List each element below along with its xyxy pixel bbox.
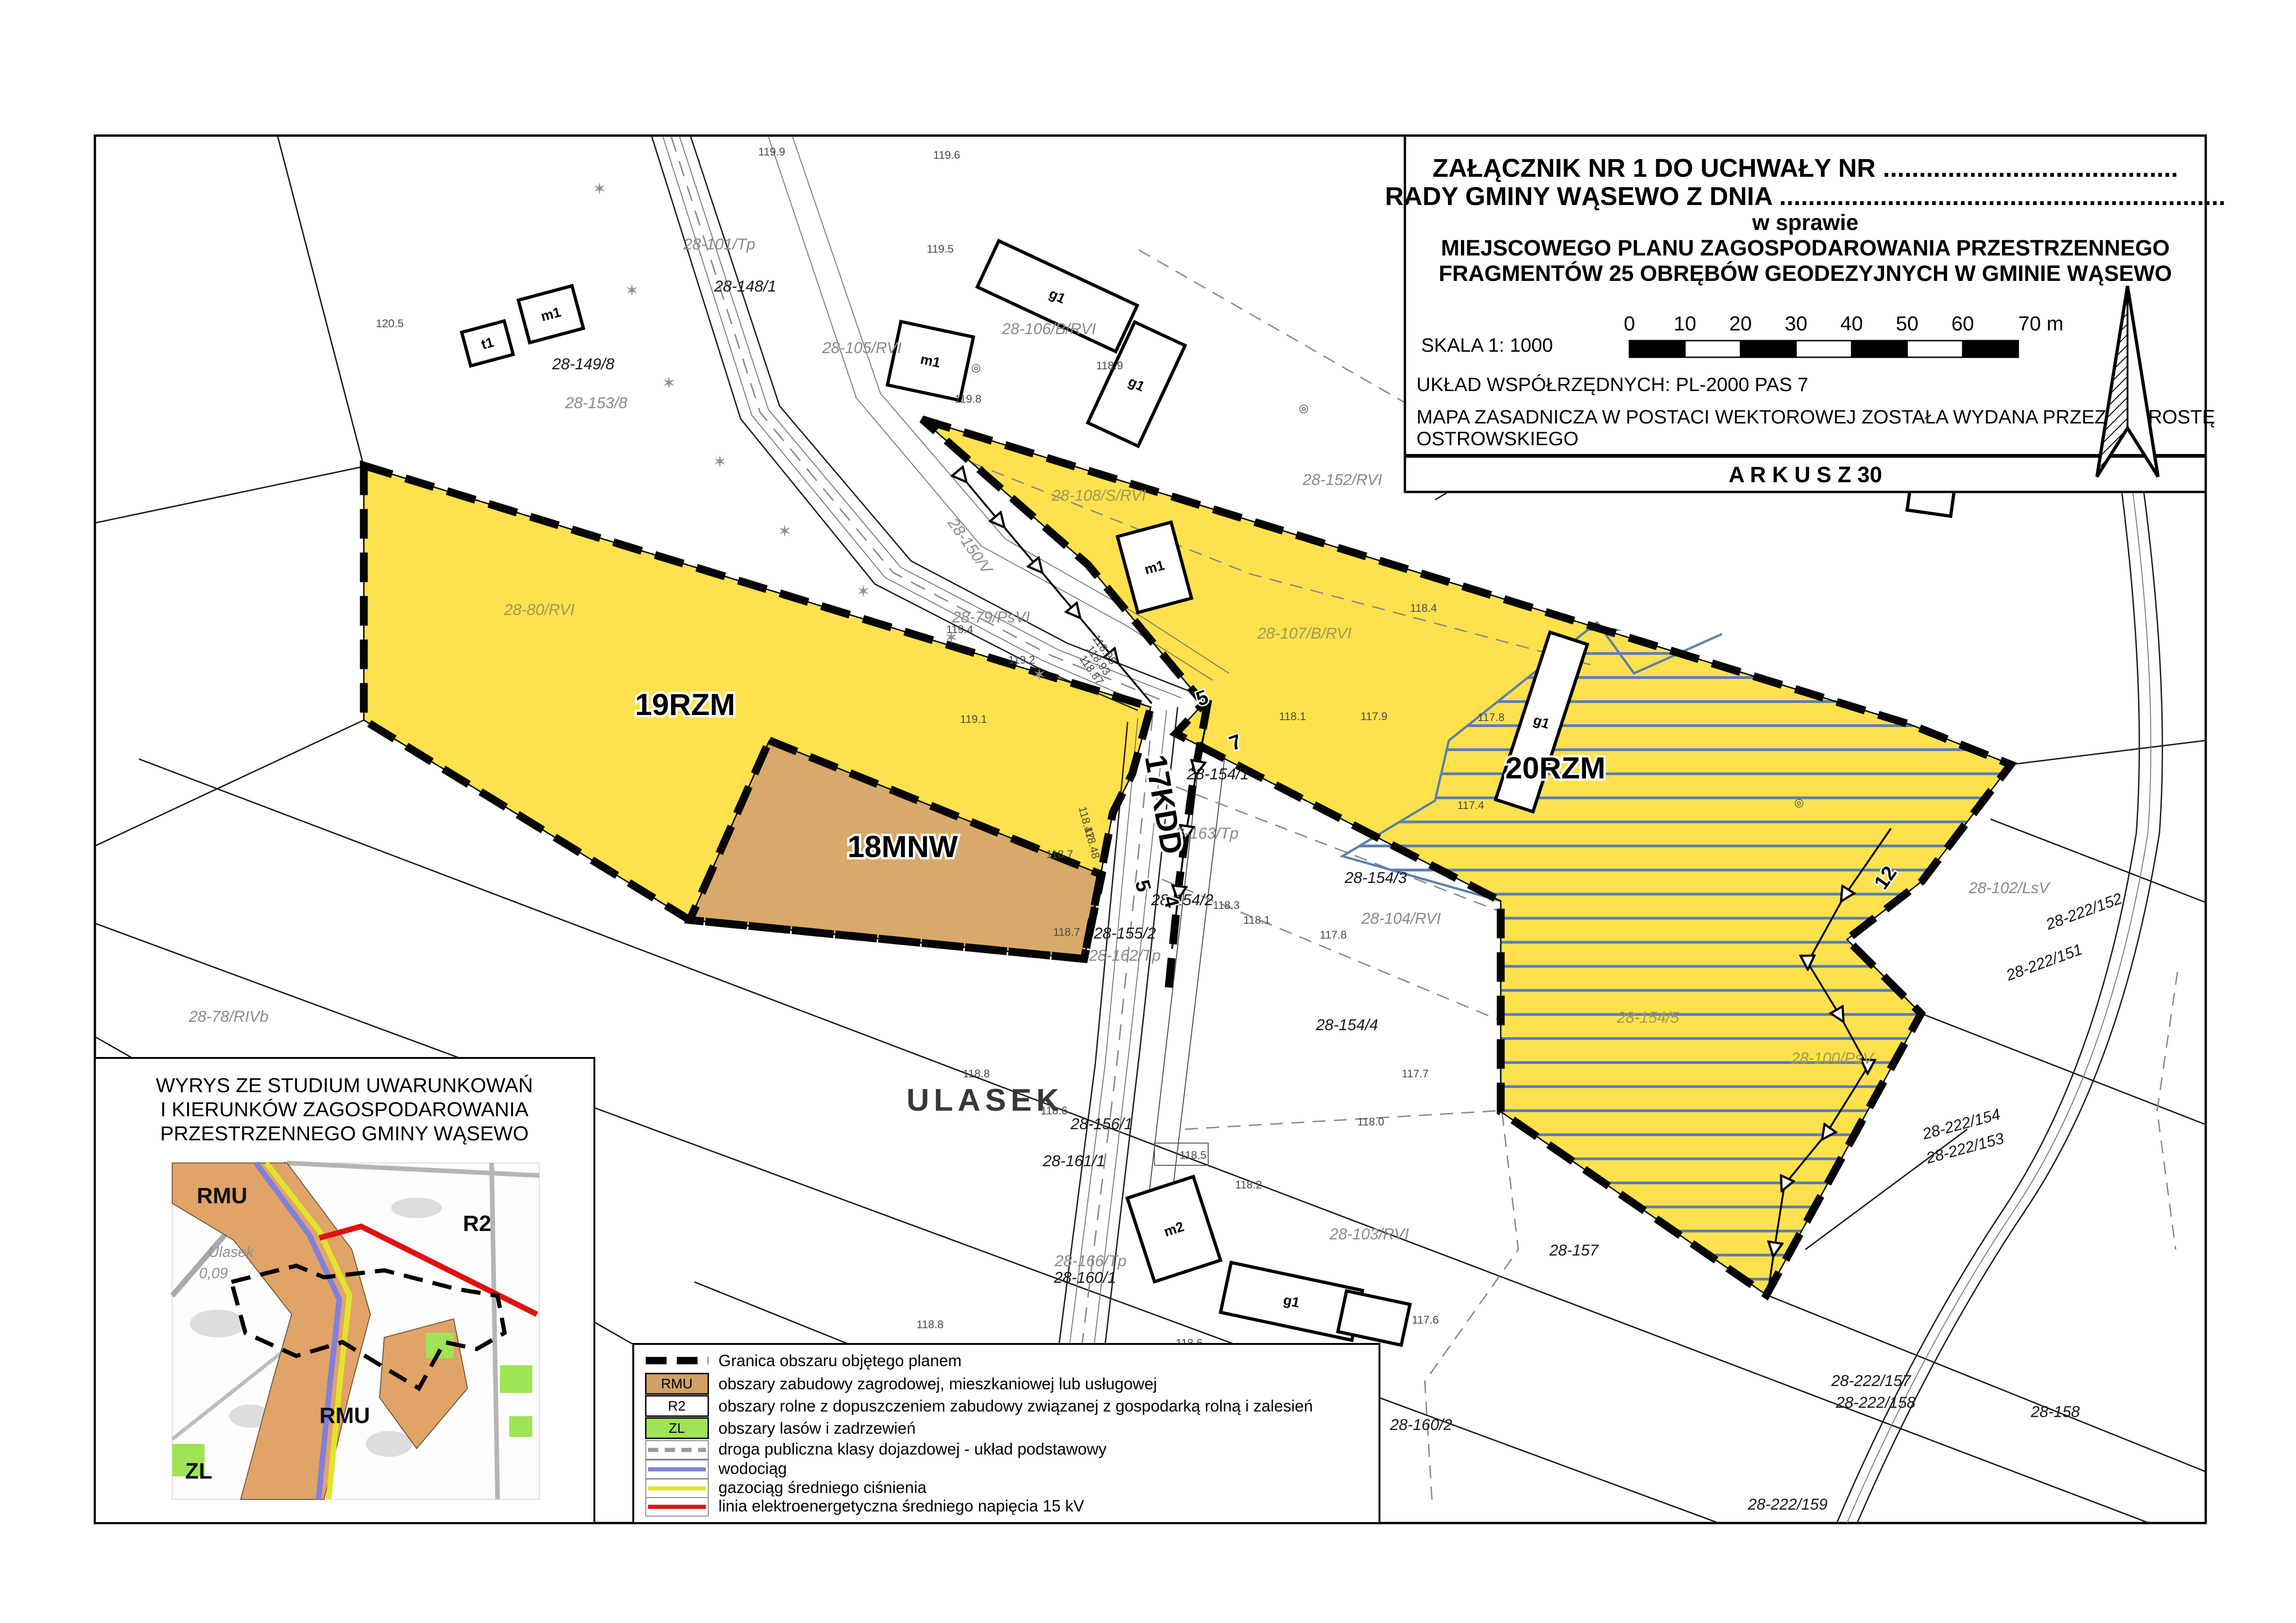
- source-line2: OSTROWSKIEGO: [1416, 428, 1578, 449]
- inset-label: ZL: [185, 1459, 212, 1484]
- legend-label: linia elektroenergetyczna średniego napi…: [718, 1497, 1085, 1515]
- scale-bar-segment: [1852, 341, 1907, 357]
- spot-height: 117.4: [1457, 799, 1484, 812]
- parcel-label: 28-160/2: [1390, 1416, 1452, 1434]
- inset-study-map: WYRYS ZE STUDIUM UWARUNKOWAŃ I KIERUNKÓW…: [95, 1058, 594, 1523]
- parcel-label: 28-107/B/RVI: [1257, 625, 1352, 642]
- parcel-label: 28-154/5: [1616, 1009, 1679, 1026]
- parcel-label: 28-106/B/RVI: [1001, 320, 1096, 338]
- scale-bar-segment: [1907, 341, 1963, 357]
- parcel-label: 28-162/Tp: [1089, 947, 1161, 964]
- title-line2: RADY GMINY WĄSEWO Z DNIA ...............…: [1385, 181, 2226, 211]
- spot-height: 118.5: [1179, 1149, 1206, 1162]
- inset-title-line3: PRZESTRZENNEGO GMINY WĄSEWO: [160, 1122, 529, 1145]
- spot-height: 118.8: [963, 1068, 990, 1080]
- svg-text:✶: ✶: [713, 452, 727, 471]
- scale-bar-segment: [1741, 341, 1796, 357]
- place-label-ulasek: ULASEK: [906, 1082, 1064, 1118]
- spot-height: 118.1: [1243, 914, 1270, 927]
- scale-bar-tick: 20: [1729, 312, 1752, 335]
- inset-label: 0,09: [199, 1265, 228, 1281]
- parcel-label: 28-222/159: [1747, 1496, 1828, 1513]
- spot-height: 119.4: [946, 623, 973, 636]
- legend-key: ZL: [668, 1421, 685, 1436]
- survey-point-icon: ◎: [1794, 796, 1804, 809]
- inset-label: RMU: [197, 1184, 247, 1208]
- parcel-label: 28-148/1: [714, 278, 776, 295]
- parcel-label: 28-78/RIVb: [188, 1008, 268, 1026]
- survey-point-icon: ◎: [971, 361, 981, 374]
- spot-height: 117.9: [1360, 710, 1387, 723]
- title-block: ZAŁĄCZNIK NR 1 DO UCHWAŁY NR ...........…: [1385, 136, 2226, 492]
- title-line3: w sprawie: [1752, 211, 1858, 235]
- legend-label: droga publiczna klasy dojazdowej - układ…: [718, 1440, 1107, 1458]
- parcel-label: 28-222/157: [1831, 1372, 1911, 1390]
- legend-label: Granica obszaru objętego planem: [718, 1352, 961, 1370]
- inset-map-graphic: RMUR2RMUZLUlasek0,09: [172, 1163, 539, 1499]
- legend-label: obszary lasów i zadrzewień: [718, 1419, 916, 1437]
- coord-system: UKŁAD WSPÓŁRZĘDNYCH: PL-2000 PAS 7: [1416, 373, 1809, 395]
- spot-height: 118.7: [1046, 848, 1073, 861]
- title-line1: ZAŁĄCZNIK NR 1 DO UCHWAŁY NR ...........…: [1433, 153, 2178, 182]
- scale-bar-tick: 10: [1674, 312, 1697, 335]
- scale-bar-tick: 30: [1785, 312, 1808, 335]
- parcel-label: 28-158: [2030, 1403, 2080, 1421]
- building: m1: [887, 322, 973, 400]
- scale-bar-segment: [1796, 341, 1852, 357]
- legend-label: obszary rolne z dopuszczeniem zabudowy z…: [718, 1397, 1313, 1415]
- spot-height: 118.1: [1279, 710, 1306, 723]
- legend-row: R2obszary rolne z dopuszczeniem zabudowy…: [646, 1396, 1313, 1416]
- scale-bar-segment: [1963, 341, 2018, 357]
- inset-label: R2: [463, 1212, 491, 1236]
- parcel-label: 28-153/8: [565, 394, 627, 412]
- legend-row: RMUobszary zabudowy zagrodowej, mieszkan…: [646, 1374, 1157, 1394]
- parcel-label: 28-222/158: [1835, 1394, 1915, 1412]
- spot-height: 119.6: [933, 149, 960, 162]
- parcel-label: 28-152/RVI: [1302, 471, 1382, 489]
- title-line4: MIEJSCOWEGO PLANU ZAGOSPODAROWANIA PRZES…: [1441, 236, 2170, 261]
- parcel-label: 28-154/3: [1344, 869, 1407, 887]
- parcel-label: 28-166/Tp: [1054, 1252, 1127, 1270]
- svg-text:✶: ✶: [662, 373, 676, 392]
- spot-height: 117.7: [1402, 1068, 1429, 1080]
- title-line5: FRAGMENTÓW 25 OBRĘBÓW GEODEZYJNYCH W GMI…: [1439, 261, 2172, 286]
- parcel-label: 28-157: [1549, 1242, 1599, 1259]
- spot-height: 119.1: [960, 713, 987, 726]
- parcel-label: 28-161/1: [1042, 1152, 1105, 1170]
- spot-height: 119.2: [1008, 654, 1035, 666]
- svg-text:✶: ✶: [593, 179, 606, 198]
- spot-height: 120.5: [376, 317, 404, 330]
- parcel-label: 28-154/1: [1186, 765, 1249, 783]
- spot-height: 118.3: [1213, 899, 1240, 912]
- spot-height: 119.9: [758, 146, 785, 158]
- parcel-label: 28-149/8: [552, 355, 614, 373]
- parcel-label: 28-160/1: [1054, 1269, 1116, 1287]
- spot-height: 119.5: [927, 243, 954, 255]
- parcel-label: 28-105/RVI: [822, 339, 902, 357]
- inset-title-line1: WYRYS ZE STUDIUM UWARUNKOWAŃ: [156, 1074, 533, 1097]
- legend-label: wodociąg: [718, 1460, 787, 1478]
- svg-text:✶: ✶: [778, 522, 792, 541]
- spot-height: 118.0: [1357, 1116, 1384, 1128]
- sheet-number: A R K U S Z 30: [1728, 463, 1882, 487]
- legend-row: ZLobszary lasów i zadrzewień: [646, 1418, 916, 1438]
- svg-text:✶: ✶: [625, 281, 639, 300]
- inset-title-line2: I KIERUNKÓW ZAGOSPODAROWANIA: [160, 1098, 529, 1121]
- zone-label-18mnw: 18MNW: [848, 829, 958, 864]
- legend-key: R2: [668, 1399, 686, 1414]
- svg-text:✶: ✶: [1032, 665, 1046, 684]
- spot-height: 118.7: [1053, 926, 1080, 939]
- spot-height: 118.9: [1096, 360, 1123, 372]
- scale-label: SKALA 1: 1000: [1421, 334, 1553, 356]
- spot-height: 118.8: [917, 1318, 943, 1331]
- zone-label-20rzm: 20RZM: [1505, 751, 1605, 785]
- legend-key: RMU: [661, 1376, 693, 1392]
- source-line1: MAPA ZASADNICZA W POSTACI WEKTOROWEJ ZOS…: [1416, 406, 2215, 428]
- parcel-label: 28-100/PsV: [1791, 1050, 1875, 1067]
- spot-height: 118.4: [1410, 602, 1437, 615]
- legend: Granica obszaru objętego planemRMUobszar…: [633, 1344, 1379, 1523]
- scale-bar-tick: 50: [1896, 312, 1919, 335]
- legend-label: obszary zabudowy zagrodowej, mieszkaniow…: [718, 1375, 1157, 1393]
- parcel-label: 28-156/1: [1070, 1115, 1133, 1133]
- scale-bar-tick: 70 m: [2018, 312, 2064, 335]
- zoning-plan-sheet: ✶✶ ✶✶ ✶✶ ✶✶ m1t1m1g1g1m1g1m2g1 28-101/Tp…: [0, 0, 2296, 1623]
- parcel-label: 28-101/Tp: [683, 236, 755, 253]
- svg-text:✶: ✶: [856, 582, 870, 601]
- spot-height: 119.8: [955, 393, 981, 405]
- spot-height: 118.2: [1235, 1179, 1262, 1191]
- scale-bar-tick: 0: [1624, 312, 1635, 335]
- parcel-label: 28-80/RVI: [504, 601, 575, 619]
- spot-height: 117.8: [1320, 929, 1347, 941]
- parcel-label: 28-154/4: [1316, 1016, 1378, 1034]
- legend-row: gazociąg średniego ciśnienia: [646, 1479, 927, 1498]
- parcel-label: 28-155/2: [1093, 925, 1156, 942]
- scale-bar-segment: [1685, 341, 1741, 357]
- parcel-label: 28-103/RVI: [1329, 1225, 1409, 1243]
- spot-height: 117.8: [1478, 711, 1504, 724]
- parcel-label: 28-104/RVI: [1361, 910, 1441, 927]
- zone-label-19rzm: 19RZM: [635, 687, 735, 721]
- legend-label: gazociąg średniego ciśnienia: [718, 1479, 927, 1497]
- parcel-label: 28-102/LsV: [1968, 879, 2051, 897]
- inset-label: RMU: [319, 1404, 370, 1428]
- parcel-label: 28-108/S/RVI: [1051, 487, 1146, 504]
- scale-bar-segment: [1629, 341, 1685, 357]
- scale-bar-tick: 60: [1952, 312, 1974, 335]
- scale-bar-tick: 40: [1841, 312, 1863, 335]
- survey-point-icon: ◎: [1299, 402, 1309, 415]
- inset-label: Ulasek: [208, 1244, 255, 1260]
- spot-height: 117.6: [1412, 1314, 1439, 1326]
